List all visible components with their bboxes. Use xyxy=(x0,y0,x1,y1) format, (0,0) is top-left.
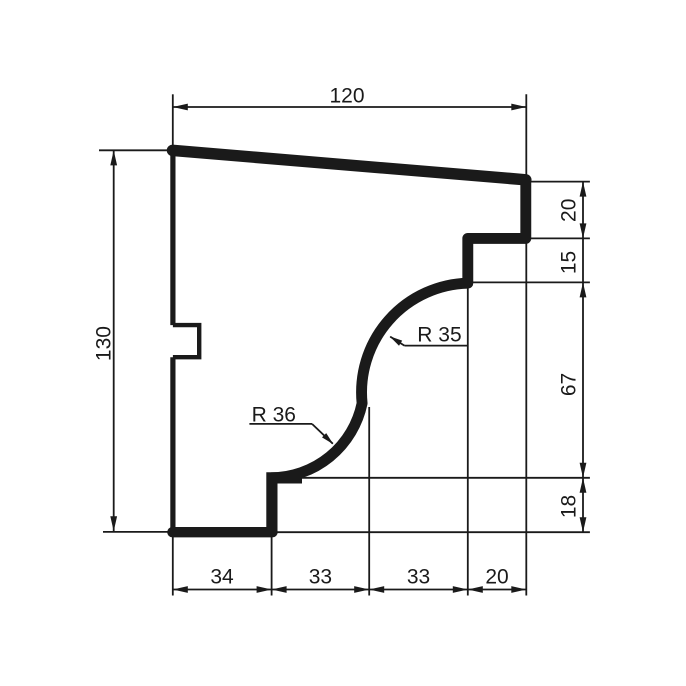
svg-text:20: 20 xyxy=(557,199,580,222)
svg-text:18: 18 xyxy=(557,495,580,518)
svg-text:120: 120 xyxy=(329,85,364,108)
svg-text:34: 34 xyxy=(210,566,234,589)
svg-text:20: 20 xyxy=(485,566,508,589)
svg-text:15: 15 xyxy=(557,251,580,274)
svg-text:R 35: R 35 xyxy=(417,324,461,347)
svg-text:130: 130 xyxy=(92,326,115,361)
svg-text:67: 67 xyxy=(557,373,580,396)
svg-text:33: 33 xyxy=(407,566,430,589)
svg-text:R 36: R 36 xyxy=(252,404,296,427)
svg-text:33: 33 xyxy=(309,566,332,589)
